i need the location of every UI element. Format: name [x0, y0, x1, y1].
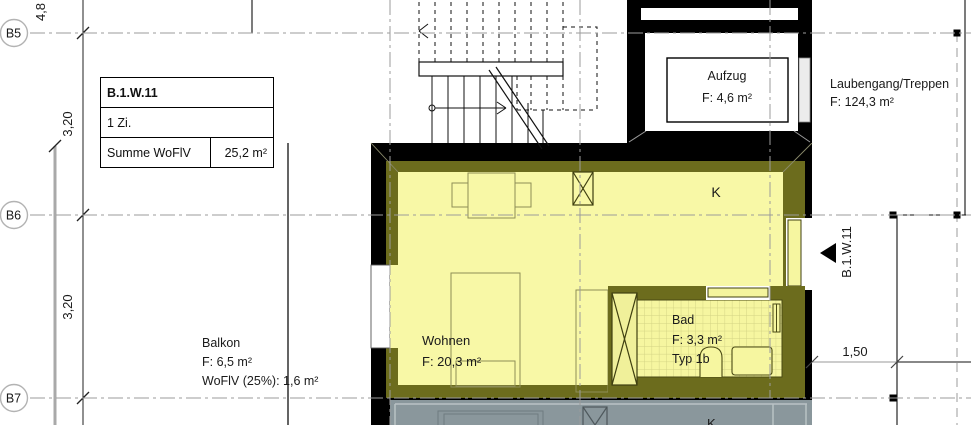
entry-marker: B.1.W.11: [820, 226, 854, 278]
plan-svg: Aufzug F: 4,6 m²: [0, 0, 971, 425]
elevator-wall-joint: [641, 8, 798, 20]
dim-top-left: 4,8: [33, 3, 48, 21]
unit-info-sum-row: Summe WoFlV 25,2 m²: [101, 138, 273, 167]
walkway-name: Laubengang/Treppen: [830, 77, 949, 91]
unit-rooms: 1 Zi.: [107, 116, 131, 130]
unit-id: B.1.W.11: [107, 86, 158, 100]
entry-marker-arrow-icon: [820, 243, 836, 263]
elevator: Aufzug F: 4,6 m²: [627, 0, 812, 143]
dim-b6-b7: 3,20: [60, 294, 75, 319]
bath-type: Typ 1b: [672, 352, 710, 366]
floor-plan: Aufzug F: 4,6 m²: [0, 0, 971, 425]
living-name: Wohnen: [422, 333, 470, 348]
unit-info-title-row: B.1.W.11: [101, 78, 273, 108]
balcony-name: Balkon: [202, 336, 240, 350]
lower-unit: K: [390, 400, 812, 425]
grid-label-b7: B7: [6, 392, 21, 406]
stairs: [419, 2, 597, 149]
dim-right: 1,50: [842, 344, 867, 359]
grid-bubbles: B5 B6 B7: [1, 20, 28, 412]
sum-label: Summe WoFlV: [101, 138, 211, 167]
bath-door-leaf: [708, 288, 768, 297]
unit-info-rooms-row: 1 Zi.: [101, 108, 273, 138]
bath-name: Bad: [672, 313, 694, 327]
lower-wall-strip: [371, 400, 390, 425]
unit-info-table: B.1.W.11 1 Zi. Summe WoFlV 25,2 m²: [100, 77, 274, 168]
sum-value: 25,2 m²: [211, 138, 273, 167]
living-area: F: 20,3 m²: [422, 354, 482, 369]
grid-label-b6: B6: [6, 209, 21, 223]
dim-b5-b6: 3,20: [60, 111, 75, 136]
stairs-upper-flight: [419, 2, 597, 110]
kitchen-label: K: [711, 184, 721, 200]
balcony-window: [371, 265, 398, 348]
bath-area: F: 3,3 m²: [672, 333, 722, 347]
entry-marker-label: B.1.W.11: [839, 226, 854, 278]
walkway-area: F: 124,3 m²: [830, 95, 894, 109]
elevator-door: [799, 58, 810, 122]
balcony-area: F: 6,5 m²: [202, 355, 252, 369]
grid-label-b5: B5: [6, 27, 21, 41]
washbasin: [732, 347, 772, 375]
column-bath: [612, 293, 637, 385]
radiator: [773, 304, 780, 332]
elevator-name: Aufzug: [708, 69, 747, 83]
elevator-area: F: 4,6 m²: [702, 91, 752, 105]
entry-door: [786, 218, 812, 290]
lower-unit-kitchen-label: K: [707, 416, 716, 425]
balcony-wofiv: WoFlV (25%): 1,6 m²: [202, 374, 318, 388]
